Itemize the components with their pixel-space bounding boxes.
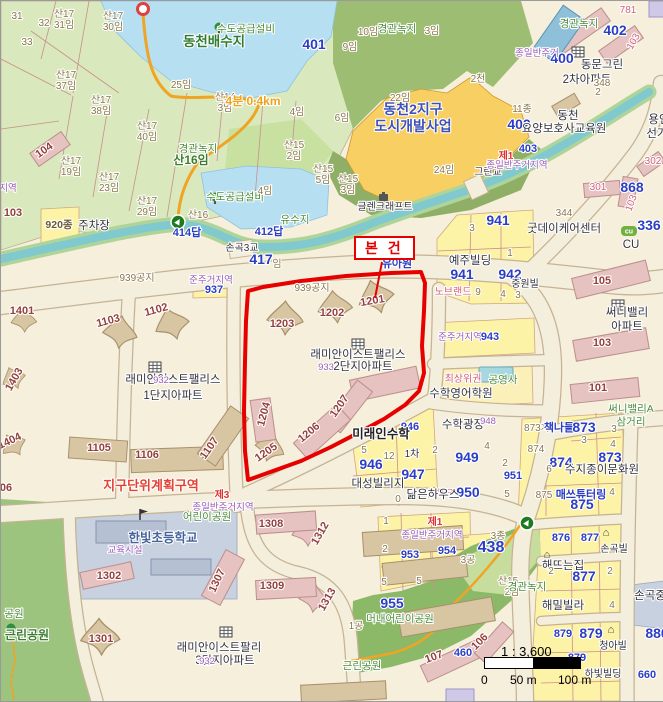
map-label: 0 <box>395 494 401 505</box>
map-label: 산15 <box>284 139 305 151</box>
map-label: 941 <box>450 266 474 282</box>
map-label: 동천 <box>557 108 578 122</box>
map-label: 산17 <box>99 171 120 183</box>
map-label: 4 <box>609 600 615 611</box>
map-label: 동문그린 <box>581 58 623 71</box>
map-label: 수학영어학원 <box>429 386 492 400</box>
map-label: 3 <box>515 290 521 301</box>
map-label: 최상위권 <box>445 372 482 385</box>
map-label: 417 <box>249 251 273 267</box>
map-label: 머내어린이공원 <box>366 613 434 625</box>
road-876-low <box>541 617 623 621</box>
map-label: 어린이공원 <box>183 511 231 523</box>
map-label: 써니밸리A <box>608 403 654 415</box>
map-label: 삼거리 <box>617 416 646 428</box>
map-label: 선거 <box>646 127 663 140</box>
route-start-marker <box>138 4 149 15</box>
map-label: 산17 <box>61 155 82 167</box>
map-label: 1105 <box>87 442 111 454</box>
map-label: 336 <box>637 217 661 233</box>
map-label: 868 <box>620 179 644 195</box>
map-label: 932 <box>199 656 215 667</box>
map-label: 청아빌 <box>599 640 627 652</box>
map-label: 5 <box>416 576 422 587</box>
map-label: 412답 <box>255 224 283 238</box>
scale-tick-100: 100 m <box>558 673 591 687</box>
map-label: 873 <box>598 449 622 465</box>
map-label: 5 <box>504 489 510 500</box>
map-label: 4분 0.4km <box>225 94 280 108</box>
subject-callout: 본 건 <box>354 236 415 260</box>
map-label: 동천배수지 <box>183 34 245 49</box>
map-label: 1106 <box>135 449 159 461</box>
map-label: 1302 <box>97 570 121 582</box>
map-label: 660 <box>638 669 656 681</box>
map-label: 920종 <box>45 219 73 231</box>
map-label: 산17 <box>56 69 77 81</box>
map-label: 수지종이문화원 <box>565 462 639 476</box>
map-label: 1 <box>507 248 513 259</box>
map-label: 지구단위계획구역 <box>103 478 199 493</box>
map-label: 주차장 <box>78 219 110 232</box>
map-label: 877 <box>581 532 599 544</box>
map-label: 2 <box>382 544 388 555</box>
map-label: 3임 <box>425 24 440 37</box>
map-label: 교육시설 <box>108 545 143 556</box>
map-label: 4임 <box>258 184 273 197</box>
map-label: 종일반주거지역 <box>401 530 462 541</box>
map-label: 용인 <box>648 113 663 126</box>
map-container[interactable]: ⌂⌂⌂⌂cu313233산1731임산1730임산1737임산1738임산174… <box>0 0 663 702</box>
map-label: 932 <box>153 375 169 386</box>
map-label: 1309 <box>260 580 284 592</box>
map-label: 1202 <box>320 307 344 319</box>
map-label: 수학광장 <box>442 418 485 431</box>
map-label: 5임 <box>316 173 331 186</box>
map-label: 874 <box>528 444 545 455</box>
map-label: 943 <box>481 331 499 343</box>
map-label: 6 <box>546 464 552 475</box>
map-label: 근린공원 <box>343 660 382 672</box>
house-icon: ⌂ <box>603 527 610 539</box>
map-label: 939공지 <box>119 272 154 284</box>
map-label: 2 <box>595 87 601 98</box>
map-label: 수도공급설비 <box>206 191 264 203</box>
map-label: 941 <box>486 212 510 228</box>
map-canvas[interactable]: ⌂⌂⌂⌂cu313233산1731임산1730임산1737임산1738임산174… <box>1 1 663 701</box>
map-label: 301 <box>590 182 607 193</box>
map-label: 10임 <box>358 25 378 38</box>
map-label: 공영사 <box>489 374 518 386</box>
building <box>446 689 474 701</box>
map-label: 946 <box>359 456 383 472</box>
scale-tick-0: 0 <box>481 673 488 687</box>
map-label: 937 <box>205 284 223 296</box>
map-label: 2 <box>607 566 613 577</box>
map-label: 2단지아파트 <box>333 360 392 373</box>
map-label: 제3 <box>215 488 230 501</box>
map-label: 해밀빌라 <box>542 599 585 612</box>
map-label: 23임 <box>99 181 119 194</box>
map-label: 33 <box>21 37 33 48</box>
map-label: 4임 <box>290 105 305 118</box>
map-label: 종일반주거 <box>515 48 559 59</box>
map-label: 중원빌 <box>511 278 539 290</box>
map-label: 414답 <box>173 225 201 239</box>
map-label: 임 <box>272 257 281 270</box>
map-label: 산17 <box>137 195 158 207</box>
map-label: 873 <box>572 419 596 435</box>
map-label: 302 <box>645 156 662 167</box>
map-label: 4 <box>609 487 615 498</box>
map-label: 닮은하우스 <box>407 487 460 501</box>
map-label: 401 <box>302 36 326 52</box>
map-label: 근린공원 <box>5 627 49 642</box>
map-label: 19임 <box>61 165 81 178</box>
map-label: 955 <box>380 595 404 611</box>
map-label: 344 <box>556 208 573 219</box>
map-label: 951 <box>504 470 522 482</box>
map-label: 미래인수학 <box>352 426 410 441</box>
map-label: 31 <box>11 11 23 22</box>
road-east-vertical <box>627 421 631 701</box>
map-label: 30임 <box>103 20 123 33</box>
apartment-icon <box>572 47 584 57</box>
map-label: 산16임 <box>173 152 208 167</box>
road-inner-1 <box>233 271 237 506</box>
map-label: 4 <box>500 289 506 300</box>
map-label: 산16 <box>188 209 209 221</box>
map-label: 950 <box>456 484 480 500</box>
building <box>649 1 663 17</box>
map-label: 875 <box>536 490 553 501</box>
map-label: 875 <box>570 496 594 512</box>
map-label: 한빛초등학교 <box>128 530 198 545</box>
map-label: 402 <box>603 22 627 38</box>
map-label: 460 <box>454 647 472 659</box>
map-label: 101 <box>589 382 607 394</box>
map-label: 공원 <box>4 608 23 620</box>
map-label: 요양보호사교육원 <box>522 121 607 135</box>
map-label: 11종 <box>512 103 532 115</box>
map-label: 879 <box>554 628 572 640</box>
map-label: 103 <box>593 337 611 349</box>
map-label: 3공 <box>461 554 476 566</box>
map-label: 종일반주거지역 <box>486 160 547 171</box>
map-label: 유수지 <box>281 214 310 226</box>
map-label: 5 <box>381 577 387 588</box>
map-label: 06 <box>1 482 12 494</box>
map-label: 3 <box>469 223 475 234</box>
map-label: 제1 <box>428 515 443 528</box>
map-label: 2 <box>502 458 508 469</box>
building <box>151 559 211 575</box>
map-label: 877 <box>572 568 596 584</box>
map-label: 105 <box>593 275 611 287</box>
map-label: 29임 <box>137 205 157 218</box>
map-label: 래미안이스트팔리 <box>177 640 262 654</box>
map-label: 949 <box>455 449 479 465</box>
map-label: 1308 <box>259 518 283 530</box>
map-label: 947 <box>401 466 425 482</box>
map-label: 32 <box>38 18 50 29</box>
map-label: 933 <box>318 362 334 373</box>
map-label: 40임 <box>137 130 157 143</box>
map-label: 37임 <box>56 79 76 92</box>
map-label: 781 <box>620 5 637 16</box>
map-label: 24임 <box>434 163 454 176</box>
map-label: 1401 <box>10 305 34 317</box>
map-label: 948 <box>480 416 496 427</box>
map-label: 103 <box>4 207 22 219</box>
scale-bar <box>484 657 581 669</box>
map-label: 9 <box>475 287 481 298</box>
map-label: 1301 <box>89 633 113 645</box>
road-academy <box>433 360 550 364</box>
map-label: 12 <box>383 451 395 462</box>
map-label: 2 <box>548 566 554 577</box>
apartment-icon <box>149 362 161 372</box>
apartment-icon <box>220 627 232 637</box>
map-label: 3 <box>581 435 587 446</box>
map-label: 경관녹지 <box>508 580 547 593</box>
house-icon: ⌂ <box>608 624 615 636</box>
map-label: 4 <box>484 441 490 452</box>
road-876-top <box>529 519 623 525</box>
map-label: 써니밸리 <box>606 306 648 319</box>
map-label: 5 <box>361 445 367 456</box>
map-label: 손곡빌 <box>600 543 628 555</box>
map-label: 아파트 <box>611 320 643 333</box>
map-label: CU <box>623 239 640 251</box>
map-label: 31임 <box>54 18 74 31</box>
map-label: 2 <box>432 445 438 456</box>
map-label: 6임 <box>335 111 350 124</box>
map-label: 산17 <box>103 10 124 22</box>
map-label: 산17 <box>91 94 112 106</box>
map-label: 880 <box>645 625 663 641</box>
map-label: 1공 <box>349 620 364 632</box>
cu-badge-icon: cu <box>625 229 633 236</box>
map-label: 대성빌리지 <box>352 477 405 490</box>
map-label: 도시개발사업 <box>374 118 451 134</box>
map-label: 3임 <box>341 183 356 196</box>
school-2 <box>631 581 663 629</box>
map-label: 산15 <box>313 163 334 175</box>
map-label: 준주거지역 <box>438 332 482 343</box>
map-label: 9임 <box>343 40 358 53</box>
map-label: 산17 <box>54 8 75 20</box>
map-label: 래미안이스트팰리스 <box>125 372 220 386</box>
map-label: 2임 <box>287 149 302 162</box>
map-label: 노브랜드 <box>435 286 472 298</box>
road-east-of-subject <box>434 289 439 399</box>
map-label: 1203 <box>270 318 294 330</box>
map-label: 손곡중 <box>634 589 663 602</box>
map-label: 3종 <box>491 530 506 542</box>
map-label: 책나들 <box>544 420 574 434</box>
map-label: 25임 <box>171 78 191 91</box>
scale-tick-50: 50 m <box>510 673 537 687</box>
apartment-icon <box>352 339 364 349</box>
map-label: 954 <box>438 545 457 557</box>
map-label: 2천 <box>471 73 486 85</box>
map-label: 876 <box>552 532 570 544</box>
map-label: 글렌크래프트 <box>357 201 412 213</box>
map-label: 953 <box>401 549 419 561</box>
map-label: 403 <box>519 143 537 155</box>
map-label: 산17 <box>137 120 158 132</box>
map-label: 굿데이케어센터 <box>527 222 601 235</box>
map-label: 산15 <box>338 173 359 185</box>
map-label: 경관녹지 <box>378 22 417 35</box>
map-label: 939공지 <box>294 282 329 294</box>
map-label: 38임 <box>91 104 111 117</box>
shop-icon <box>379 194 388 201</box>
map-label: 래미안이스트팰리스 <box>310 347 405 361</box>
map-label: 22임 <box>390 91 410 104</box>
map-label: 1 <box>383 516 389 527</box>
map-label: 1단지아파트 <box>143 389 202 402</box>
map-label: 경관녹지 <box>560 17 599 30</box>
map-label: 879 <box>579 625 603 641</box>
scale-bar-dark <box>533 658 581 668</box>
shop-icon <box>382 192 385 194</box>
map-label: 1차 <box>405 448 420 460</box>
map-label: 지역 <box>1 183 17 194</box>
